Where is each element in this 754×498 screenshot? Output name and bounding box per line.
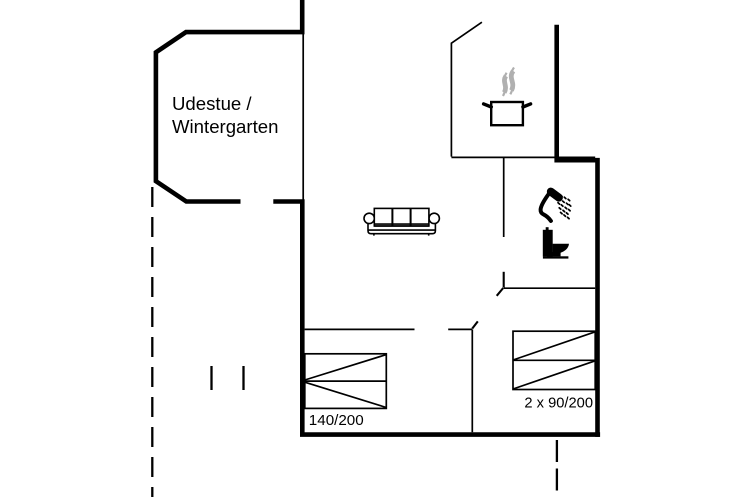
svg-text:Udestue /: Udestue / — [172, 93, 252, 114]
svg-text:140/200: 140/200 — [309, 412, 364, 429]
svg-text:Wintergarten: Wintergarten — [172, 116, 278, 137]
svg-text:2 x 90/200: 2 x 90/200 — [524, 395, 593, 411]
